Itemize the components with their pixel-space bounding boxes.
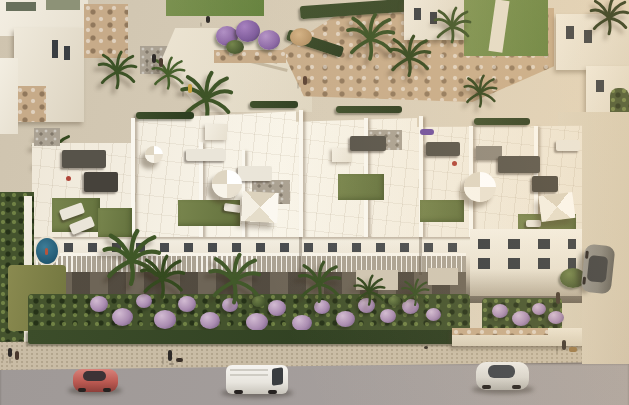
van-wheel	[268, 390, 277, 394]
roof-hedge	[474, 118, 530, 125]
lounge-sofa	[426, 142, 460, 156]
pedestrian	[206, 16, 210, 23]
pedestrian	[168, 350, 172, 361]
sun-lounger	[526, 220, 541, 227]
palm-tree	[352, 274, 386, 308]
stair-bulkhead	[332, 148, 352, 162]
rooftop-turf	[338, 174, 384, 200]
terrace-parapet	[299, 110, 303, 238]
villa-window	[52, 40, 58, 58]
dining-table-white	[238, 166, 272, 181]
lilac-shrub	[336, 311, 355, 327]
van-roof-rib	[230, 369, 268, 371]
roof-hedge	[250, 101, 298, 108]
lilac-shrub	[112, 308, 133, 326]
lilac-shrub	[90, 296, 108, 312]
silver-car	[476, 362, 529, 390]
dining-set	[532, 176, 558, 192]
background-lawn	[166, 0, 264, 16]
facade-divider	[419, 237, 422, 275]
lounge-sofa	[350, 136, 386, 151]
palm-tree	[138, 254, 186, 302]
background-window	[414, 8, 421, 20]
lounge-sofa	[556, 140, 580, 151]
lilac-shrub	[492, 304, 508, 318]
van-wheel	[234, 390, 243, 394]
roof-hedge	[136, 112, 194, 119]
flower-pot-purple	[420, 129, 434, 135]
pedestrian-with-bicycle	[556, 292, 560, 304]
lilac-shrub	[154, 310, 176, 329]
lounge-sofa	[498, 156, 540, 173]
background-window	[566, 26, 574, 39]
car-glass	[587, 255, 609, 283]
pedestrian	[8, 348, 12, 357]
palm-tree	[588, 0, 629, 38]
lilac-shrub	[548, 311, 564, 324]
flower-pot-red	[452, 161, 457, 166]
outdoor-kitchen-counter	[186, 149, 226, 161]
car-wheel	[582, 276, 586, 284]
lilac-shrub	[292, 315, 312, 331]
white-parasol	[212, 170, 242, 198]
facade-window-row	[478, 239, 576, 249]
lilac-shrub	[380, 309, 396, 323]
pedestrian	[15, 351, 19, 360]
palm-tree	[462, 74, 498, 110]
car-glass	[83, 371, 106, 381]
car-wheel	[512, 385, 521, 389]
car-wheel	[103, 388, 111, 392]
palm-tree	[432, 6, 472, 46]
bird	[424, 346, 428, 349]
bougainvillea	[236, 20, 260, 42]
background-window	[596, 80, 604, 92]
lilac-shrub	[200, 312, 220, 329]
lilac-shrub	[426, 308, 441, 321]
van-roof-rib	[230, 374, 268, 376]
background-wall	[0, 58, 18, 134]
villa-roof-garden	[6, 2, 36, 11]
van-windshield	[272, 367, 283, 386]
grey-car	[581, 244, 616, 295]
street-hedge	[28, 330, 458, 344]
white-van	[226, 365, 288, 394]
flower-pot-red	[66, 176, 71, 181]
straw-parasol	[290, 28, 312, 46]
shade-canopy	[241, 191, 279, 223]
red-car	[73, 369, 118, 392]
ground-patio	[428, 268, 458, 285]
pedestrian	[152, 54, 156, 63]
bougainvillea	[258, 30, 280, 50]
dog-walker	[562, 340, 566, 350]
lounge-sofa	[62, 150, 106, 168]
lilac-shrub	[532, 303, 546, 315]
white-parasol	[464, 172, 496, 202]
shade-canopy	[539, 192, 576, 222]
pedestrian-yellow-shirt	[188, 84, 192, 93]
pedestrian	[303, 76, 307, 85]
car-wheel	[78, 388, 86, 392]
palm-tree	[96, 50, 138, 92]
palm-tree	[296, 260, 342, 306]
driveway-apron	[582, 300, 629, 364]
rooftop-turf	[420, 200, 464, 222]
aerial-rendering-scene	[0, 0, 629, 405]
facade-window-row	[478, 258, 576, 269]
lilac-shrub	[512, 311, 530, 326]
car-glass	[488, 365, 515, 378]
gravel-bulkhead	[34, 128, 60, 146]
dog	[176, 358, 183, 362]
street-wall-coping	[452, 328, 548, 335]
stair-bulkhead	[205, 124, 227, 140]
villa-roof-garden	[46, 0, 80, 10]
shrub	[226, 40, 244, 54]
dining-set	[84, 172, 118, 192]
dog	[569, 347, 577, 352]
palm-tree	[400, 278, 430, 308]
roof-hedge	[336, 106, 402, 113]
palm-tree	[206, 252, 262, 308]
pedestrian	[159, 58, 163, 67]
car-wheel	[482, 385, 491, 389]
lilac-shrub	[268, 300, 286, 316]
palm-tree	[386, 34, 432, 80]
lilac-shrub	[246, 313, 268, 331]
villa-stone-wall	[16, 86, 46, 122]
white-parasol	[145, 146, 163, 163]
villa-window	[64, 46, 70, 60]
planter-wall	[214, 50, 286, 63]
person-in-pool	[45, 248, 48, 255]
